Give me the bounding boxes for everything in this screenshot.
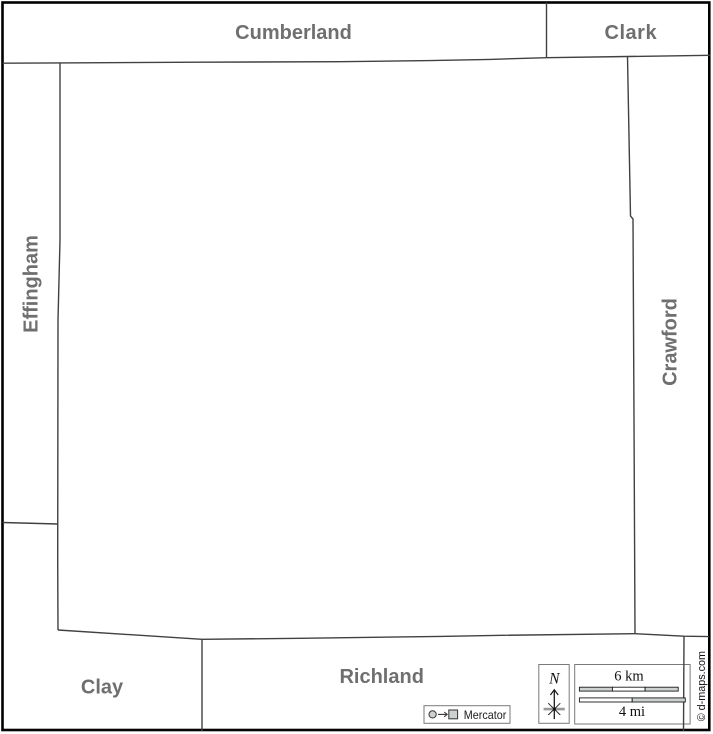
svg-text:Richland: Richland (339, 666, 423, 688)
svg-text:6 km: 6 km (614, 669, 644, 685)
svg-text:Effingham: Effingham (21, 235, 43, 333)
svg-text:Mercator: Mercator (464, 708, 507, 722)
svg-text:Clay: Clay (81, 677, 124, 699)
svg-text:Crawford: Crawford (660, 298, 682, 386)
svg-text:4 mi: 4 mi (619, 704, 645, 720)
svg-text:© d-maps.com: © d-maps.com (696, 651, 708, 721)
svg-text:N: N (548, 670, 561, 687)
svg-text:Clark: Clark (605, 22, 658, 44)
svg-text:Cumberland: Cumberland (235, 22, 352, 44)
